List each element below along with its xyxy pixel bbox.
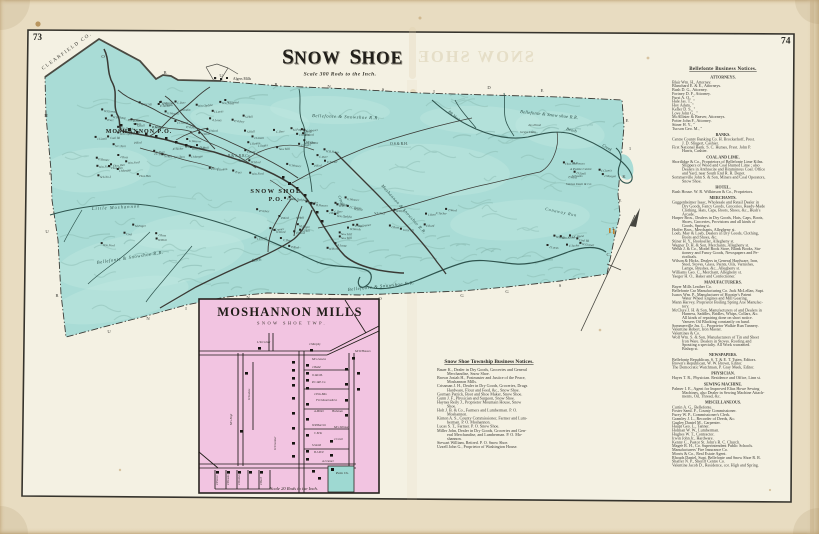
svg-text:Scale 20 Rods to the Inch.: Scale 20 Rods to the Inch. <box>270 486 318 491</box>
svg-text:A.Miller: A.Miller <box>313 409 325 413</box>
svg-text:S.Hall: S.Hall <box>245 115 253 119</box>
svg-text:Fr.Osbourne&Co: Fr.Osbourne&Co <box>315 398 338 402</box>
svg-text:Cool: Cool <box>126 232 132 236</box>
svg-text:W.Holt: W.Holt <box>158 238 167 242</box>
svg-text:Sch.No.3: Sch.No.3 <box>374 211 386 216</box>
svg-text:C.Derr: C.Derr <box>283 238 293 242</box>
svg-text:Jas Pond: Jas Pond <box>528 123 541 127</box>
svg-text:J.Budd: J.Budd <box>312 365 321 369</box>
svg-text:Schools: Schools <box>572 174 583 178</box>
svg-text:Saw Mill: Saw Mill <box>279 147 290 151</box>
svg-text:J.Beck: J.Beck <box>259 476 263 485</box>
svg-text:W.P.Barrett: W.P.Barrett <box>312 423 326 427</box>
svg-text:T.Word: T.Word <box>209 129 218 133</box>
svg-text:M.Paget: M.Paget <box>134 224 146 228</box>
svg-text:A.Cramer: A.Cramer <box>321 459 335 463</box>
svg-text:Wm.Ford: Wm.Ford <box>252 172 264 176</box>
svg-text:C.Derr: C.Derr <box>276 129 286 134</box>
svg-text:Wm.Opdyke: Wm.Opdyke <box>337 214 353 219</box>
svg-text:W.Hurd: W.Hurd <box>251 160 261 164</box>
svg-text:J.Ross: J.Ross <box>428 212 437 217</box>
svg-text:B.& S. R.R.Co: B.& S. R.R.Co <box>228 154 250 158</box>
svg-text:McW.Houses: McW.Houses <box>354 349 371 353</box>
svg-text:T.Burd: T.Burd <box>287 197 296 201</box>
svg-text:W.Holt: W.Holt <box>396 209 405 213</box>
svg-text:W.Holt: W.Holt <box>201 132 210 136</box>
svg-text:MOSHANNON MILLS: MOSHANNON MILLS <box>217 305 362 319</box>
svg-text:S: S <box>559 283 562 288</box>
svg-text:F.Tucker: F.Tucker <box>326 160 339 164</box>
svg-text:Wm.Kissel: Wm.Kissel <box>562 235 575 240</box>
svg-text:F.Tucker: F.Tucker <box>151 125 164 129</box>
svg-text:Bishop st.: Bishop st. <box>682 346 698 351</box>
svg-text:Penn Ch.: Penn Ch. <box>335 471 349 475</box>
svg-text:P.Bird: P.Bird <box>313 163 322 168</box>
svg-text:W.Creamer: W.Creamer <box>273 436 277 450</box>
svg-text:J.Ross: J.Ross <box>391 225 400 230</box>
svg-text:S.Hall: S.Hall <box>302 229 310 233</box>
svg-text:P.Vickey: P.Vickey <box>233 119 245 124</box>
svg-text:S.C.Tarn: S.C.Tarn <box>115 144 126 148</box>
svg-text:T.Word: T.Word <box>448 208 457 212</box>
svg-text:O.&D.B.: O.&D.B. <box>312 373 323 377</box>
svg-text:E: E <box>541 88 544 93</box>
svg-text:SNOW SHOE TWP.: SNOW SHOE TWP. <box>257 321 327 326</box>
svg-text:Algers Mills: Algers Mills <box>233 77 252 81</box>
svg-text:J.Pierce: J.Pierce <box>215 475 219 485</box>
svg-text:S.C.Tarn: S.C.Tarn <box>174 155 185 159</box>
svg-text:W.Games: W.Games <box>247 388 251 400</box>
svg-text:SNOW SHOE: SNOW SHOE <box>250 188 301 195</box>
svg-text:Vantas Dash & Co: Vantas Dash & Co <box>566 182 592 186</box>
svg-text:73: 73 <box>33 32 43 42</box>
svg-text:L.W.Culver: L.W.Culver <box>256 340 271 344</box>
svg-text:J.Covil: J.Covil <box>334 437 343 441</box>
svg-text:Snow Shoe.: Snow Shoe. <box>682 178 702 183</box>
svg-text:SNOW SHOE: SNOW SHOE <box>416 47 534 66</box>
svg-text:74: 74 <box>781 37 791 47</box>
svg-text:P.O.: P.O. <box>269 197 284 203</box>
svg-text:P.C.&E.Co: P.C.&E.Co <box>311 380 326 384</box>
svg-text:T.Word: T.Word <box>305 133 314 137</box>
svg-text:Saw Mill: Saw Mill <box>341 232 352 236</box>
svg-text:C.Derr: C.Derr <box>156 150 166 154</box>
svg-text:S: S <box>49 171 52 176</box>
svg-text:T.Clancy: T.Clancy <box>601 168 613 173</box>
svg-text:J.Etis-Bitn: J.Etis-Bitn <box>314 392 327 396</box>
svg-text:T.Clancy: T.Clancy <box>177 120 189 125</box>
svg-text:J.Haines: J.Haines <box>237 474 241 485</box>
svg-text:T.Burd: T.Burd <box>426 224 435 228</box>
svg-text:A.Lantz: A.Lantz <box>211 118 222 122</box>
svg-text:S: S <box>382 87 385 92</box>
svg-text:J.Morgan: J.Morgan <box>604 174 617 178</box>
svg-text:Coal Bk: Coal Bk <box>110 136 121 140</box>
svg-text:J.Downs: J.Downs <box>226 474 230 485</box>
svg-text:W.Hurd: W.Hurd <box>329 246 339 251</box>
svg-text:G.Weaver: G.Weaver <box>189 139 202 143</box>
svg-text:Tract: Tract <box>235 170 242 174</box>
svg-text:J.Murphy: J.Murphy <box>309 342 321 346</box>
svg-text:Wm.Ford: Wm.Ford <box>103 243 115 247</box>
svg-text:Grist Ml: Grist Ml <box>403 228 414 232</box>
svg-text:W.Gunsal: W.Gunsal <box>104 109 116 114</box>
svg-text:C.B.W.: C.B.W. <box>314 431 323 435</box>
svg-text:S.Hall: S.Hall <box>296 216 304 220</box>
svg-text:E: E <box>619 198 622 203</box>
svg-text:A Pointe Centre: A Pointe Centre <box>569 167 592 171</box>
svg-text:B: B <box>163 70 166 75</box>
svg-text:Wm.Ford: Wm.Ford <box>128 160 140 165</box>
svg-text:Wm.Opdyke: Wm.Opdyke <box>120 131 136 136</box>
svg-text:F.Tucker: F.Tucker <box>435 211 448 216</box>
svg-text:J.Ross: J.Ross <box>158 233 167 238</box>
svg-text:P.Bird: P.Bird <box>133 140 142 145</box>
svg-text:C: C <box>606 252 609 257</box>
svg-text:C.Derr: C.Derr <box>319 155 329 159</box>
svg-text:S.Smith: S.Smith <box>312 443 322 447</box>
svg-text:Wm.Ford: Wm.Ford <box>222 101 234 106</box>
svg-text:B.J.Pell: B.J.Pell <box>314 450 324 454</box>
svg-text:C.Derr: C.Derr <box>177 100 187 104</box>
svg-text:Grist Ml: Grist Ml <box>141 102 152 107</box>
svg-text:Holsman: Holsman <box>331 409 343 413</box>
svg-text:J.Uzzell: J.Uzzell <box>97 137 107 141</box>
svg-text:Grays Dam: Grays Dam <box>520 130 536 134</box>
svg-text:Saw Mill: Saw Mill <box>341 236 352 240</box>
svg-text:Mrs.Tellman: Mrs.Tellman <box>333 425 350 429</box>
svg-text:J.Yonkin: J.Yonkin <box>180 108 191 112</box>
svg-text:Mrs.Gowns: Mrs.Gowns <box>311 357 327 361</box>
svg-text:Tract: Tract <box>238 159 245 163</box>
svg-text:Mrs.Engl: Mrs.Engl <box>229 414 233 426</box>
svg-text:SNOW SHOE: SNOW SHOE <box>282 45 403 69</box>
svg-text:E: E <box>626 118 629 123</box>
svg-text:O.S.& R.H.: O.S.& R.H. <box>390 142 408 146</box>
svg-text:Tract: Tract <box>107 118 114 122</box>
svg-text:J.Ross: J.Ross <box>120 155 129 159</box>
svg-text:P.Bird: P.Bird <box>280 216 289 220</box>
svg-text:P.Vickey: P.Vickey <box>185 125 197 130</box>
svg-text:ATTORNEYS.: ATTORNEYS. <box>710 75 736 80</box>
svg-text:J.Uzzell: J.Uzzell <box>254 136 264 140</box>
svg-text:P.Bird: P.Bird <box>290 245 299 250</box>
svg-text:S.Hall: S.Hall <box>247 129 255 134</box>
svg-text:P.Vickey: P.Vickey <box>258 209 270 213</box>
svg-text:B.Hoover: B.Hoover <box>133 118 146 123</box>
svg-text:Scale 300 Rods to the Inch.: Scale 300 Rods to the Inch. <box>304 72 377 78</box>
svg-text:W.Holt: W.Holt <box>354 207 363 212</box>
svg-text:W.Hurd: W.Hurd <box>276 230 286 234</box>
svg-text:Snow Shoe Township Business No: Snow Shoe Township Business Notices. <box>444 359 534 365</box>
svg-text:F.Tucker: F.Tucker <box>172 146 185 151</box>
svg-text:Bellefonte Business Notices.: Bellefonte Business Notices. <box>689 67 757 72</box>
svg-text:Thos.Hen: Thos.Hen <box>139 174 151 178</box>
svg-text:Sch.No.3: Sch.No.3 <box>100 175 112 179</box>
